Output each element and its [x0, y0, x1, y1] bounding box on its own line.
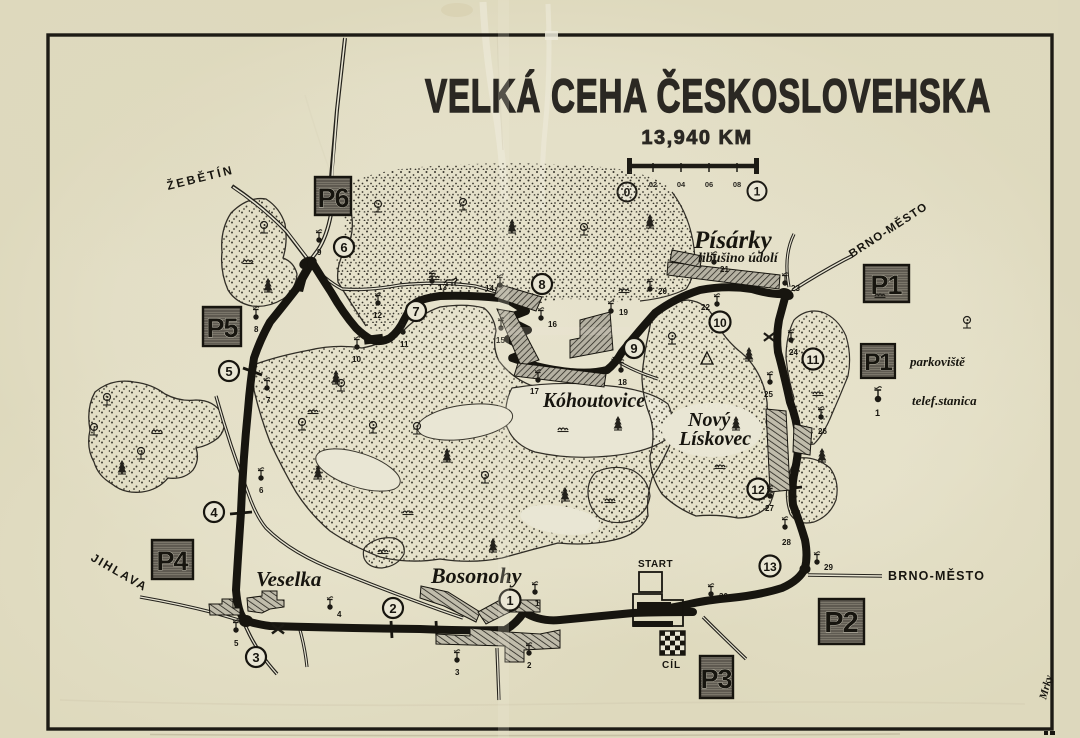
svg-text:9: 9	[317, 248, 322, 257]
svg-text:1: 1	[754, 185, 761, 199]
svg-text:VELKÁ CEHA ČESKOSLOVEHSKA: VELKÁ CEHA ČESKOSLOVEHSKA	[425, 69, 991, 122]
svg-text:3: 3	[455, 668, 460, 677]
svg-text:8: 8	[254, 325, 259, 334]
svg-text:06: 06	[705, 180, 713, 189]
svg-text:24: 24	[789, 348, 798, 357]
svg-text:08: 08	[733, 180, 741, 189]
svg-text:START: START	[638, 559, 673, 570]
svg-text:3: 3	[252, 650, 259, 665]
svg-text:P6: P6	[317, 183, 349, 213]
svg-text:2: 2	[389, 601, 396, 616]
svg-text:1: 1	[535, 599, 540, 608]
svg-text:CÍL: CÍL	[662, 658, 681, 671]
svg-text:8: 8	[538, 277, 545, 292]
svg-text:7: 7	[266, 396, 271, 405]
svg-text:10: 10	[352, 355, 361, 364]
svg-text:22: 22	[701, 303, 710, 312]
svg-text:13,940 KM: 13,940 KM	[641, 127, 752, 149]
svg-text:11: 11	[807, 353, 820, 367]
svg-text:5: 5	[225, 364, 232, 379]
svg-text:P5: P5	[206, 313, 238, 343]
svg-text:P3: P3	[700, 664, 732, 694]
svg-text:25: 25	[764, 390, 773, 399]
svg-text:23: 23	[791, 284, 800, 293]
svg-text:7: 7	[412, 304, 419, 319]
svg-text:BRNO-MĚSTO: BRNO-MĚSTO	[888, 568, 985, 583]
svg-text:P2: P2	[824, 607, 857, 639]
svg-text:04: 04	[677, 180, 686, 189]
svg-text:Kóhoutovice: Kóhoutovice	[542, 388, 645, 412]
svg-text:28: 28	[782, 538, 791, 547]
svg-text:6: 6	[340, 240, 347, 255]
svg-text:26: 26	[818, 427, 827, 436]
svg-text:13: 13	[438, 283, 447, 292]
svg-text:13: 13	[763, 560, 777, 574]
svg-text:libušino údolí: libušino údolí	[698, 251, 779, 266]
svg-text:Lískovec: Lískovec	[678, 428, 751, 450]
svg-text:10: 10	[713, 316, 727, 330]
svg-text:21: 21	[720, 265, 729, 274]
svg-text:12: 12	[373, 311, 382, 320]
svg-text:Veselka: Veselka	[256, 567, 321, 591]
svg-text:P4: P4	[156, 546, 188, 576]
svg-text:2: 2	[527, 661, 532, 670]
svg-text:12: 12	[751, 483, 765, 497]
svg-text:parkoviště: parkoviště	[909, 354, 966, 369]
svg-text:Písárky: Písárky	[693, 227, 773, 254]
svg-text:20: 20	[658, 287, 667, 296]
svg-text:5: 5	[234, 639, 239, 648]
svg-text:29: 29	[824, 563, 833, 572]
svg-text:19: 19	[619, 308, 628, 317]
svg-text:9: 9	[630, 341, 637, 356]
svg-text:11: 11	[400, 340, 409, 349]
svg-text:telef.stanica: telef.stanica	[912, 393, 977, 408]
svg-text:4: 4	[337, 610, 342, 619]
svg-text:27: 27	[765, 504, 774, 513]
svg-text:1: 1	[875, 408, 880, 418]
svg-text:4: 4	[210, 505, 218, 520]
svg-text:18: 18	[618, 378, 627, 387]
svg-text:17: 17	[530, 387, 539, 396]
svg-text:6: 6	[259, 486, 264, 495]
svg-text:P1: P1	[864, 349, 892, 376]
svg-text:14: 14	[485, 284, 494, 293]
svg-text:30: 30	[719, 592, 728, 601]
